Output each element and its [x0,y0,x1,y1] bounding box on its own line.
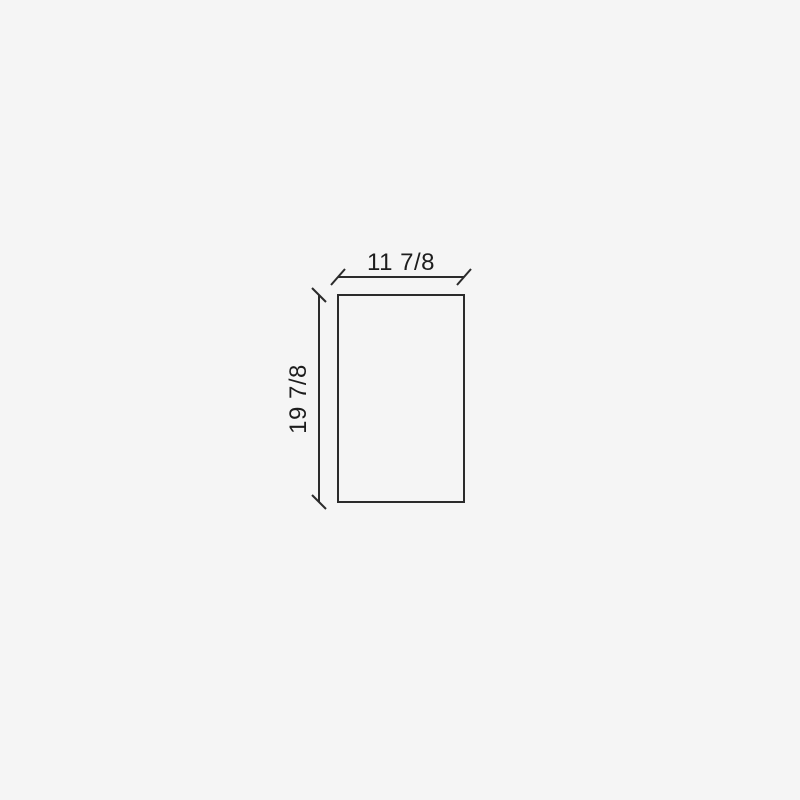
drawing-background [0,0,800,800]
drawing-canvas: 11 7/8 19 7/8 [0,0,800,800]
dimension-drawing: 11 7/8 19 7/8 [0,0,800,800]
height-dimension-label: 19 7/8 [285,364,312,434]
width-dimension-label: 11 7/8 [367,249,435,276]
